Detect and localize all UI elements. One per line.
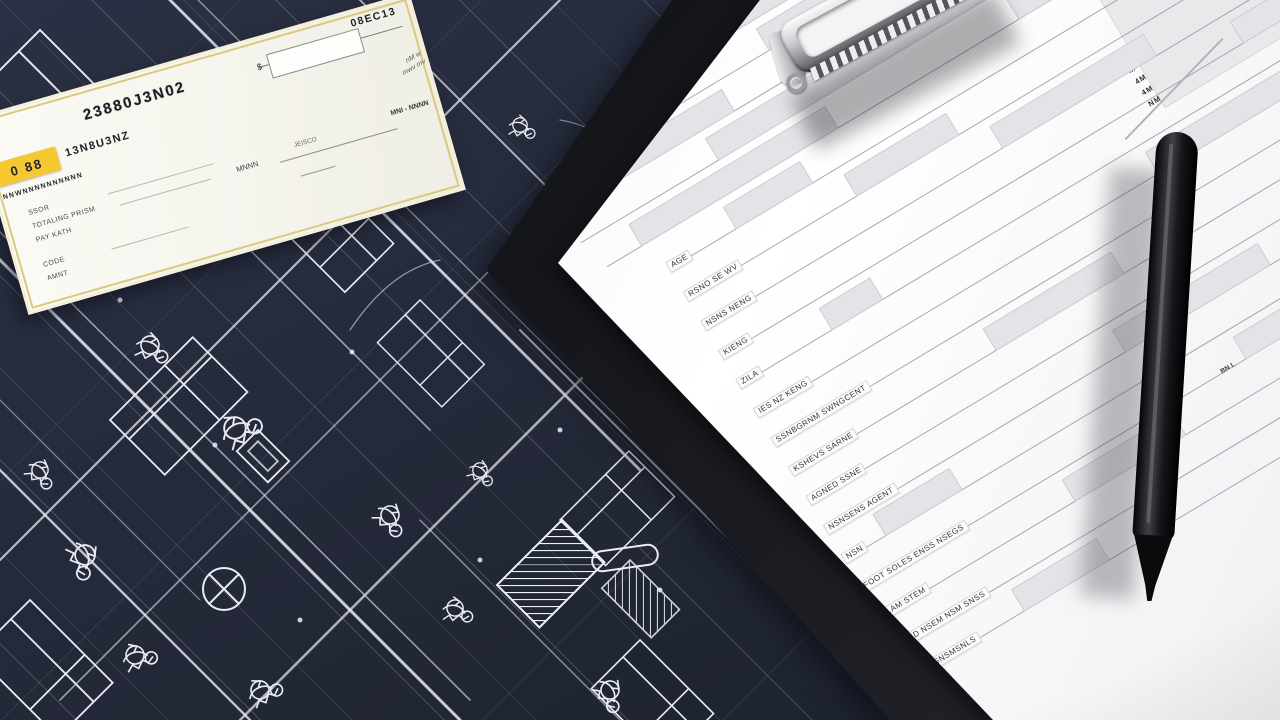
form-row-label: NSS SNSMSNLS (910, 631, 982, 681)
pen-tip (1128, 534, 1174, 602)
form-paper-wrap: NMM4M4MNM BN L AGERSNO SE WVNSNS NENGKIE… (0, 0, 1280, 720)
form-paper: NMM4M4MNM BN L AGERSNO SE WVNSNS NENGKIE… (0, 0, 1280, 720)
photo-scene: 23880J3N02 08EC13 $ nM w mwv mv 0 88 13N… (0, 0, 1280, 720)
